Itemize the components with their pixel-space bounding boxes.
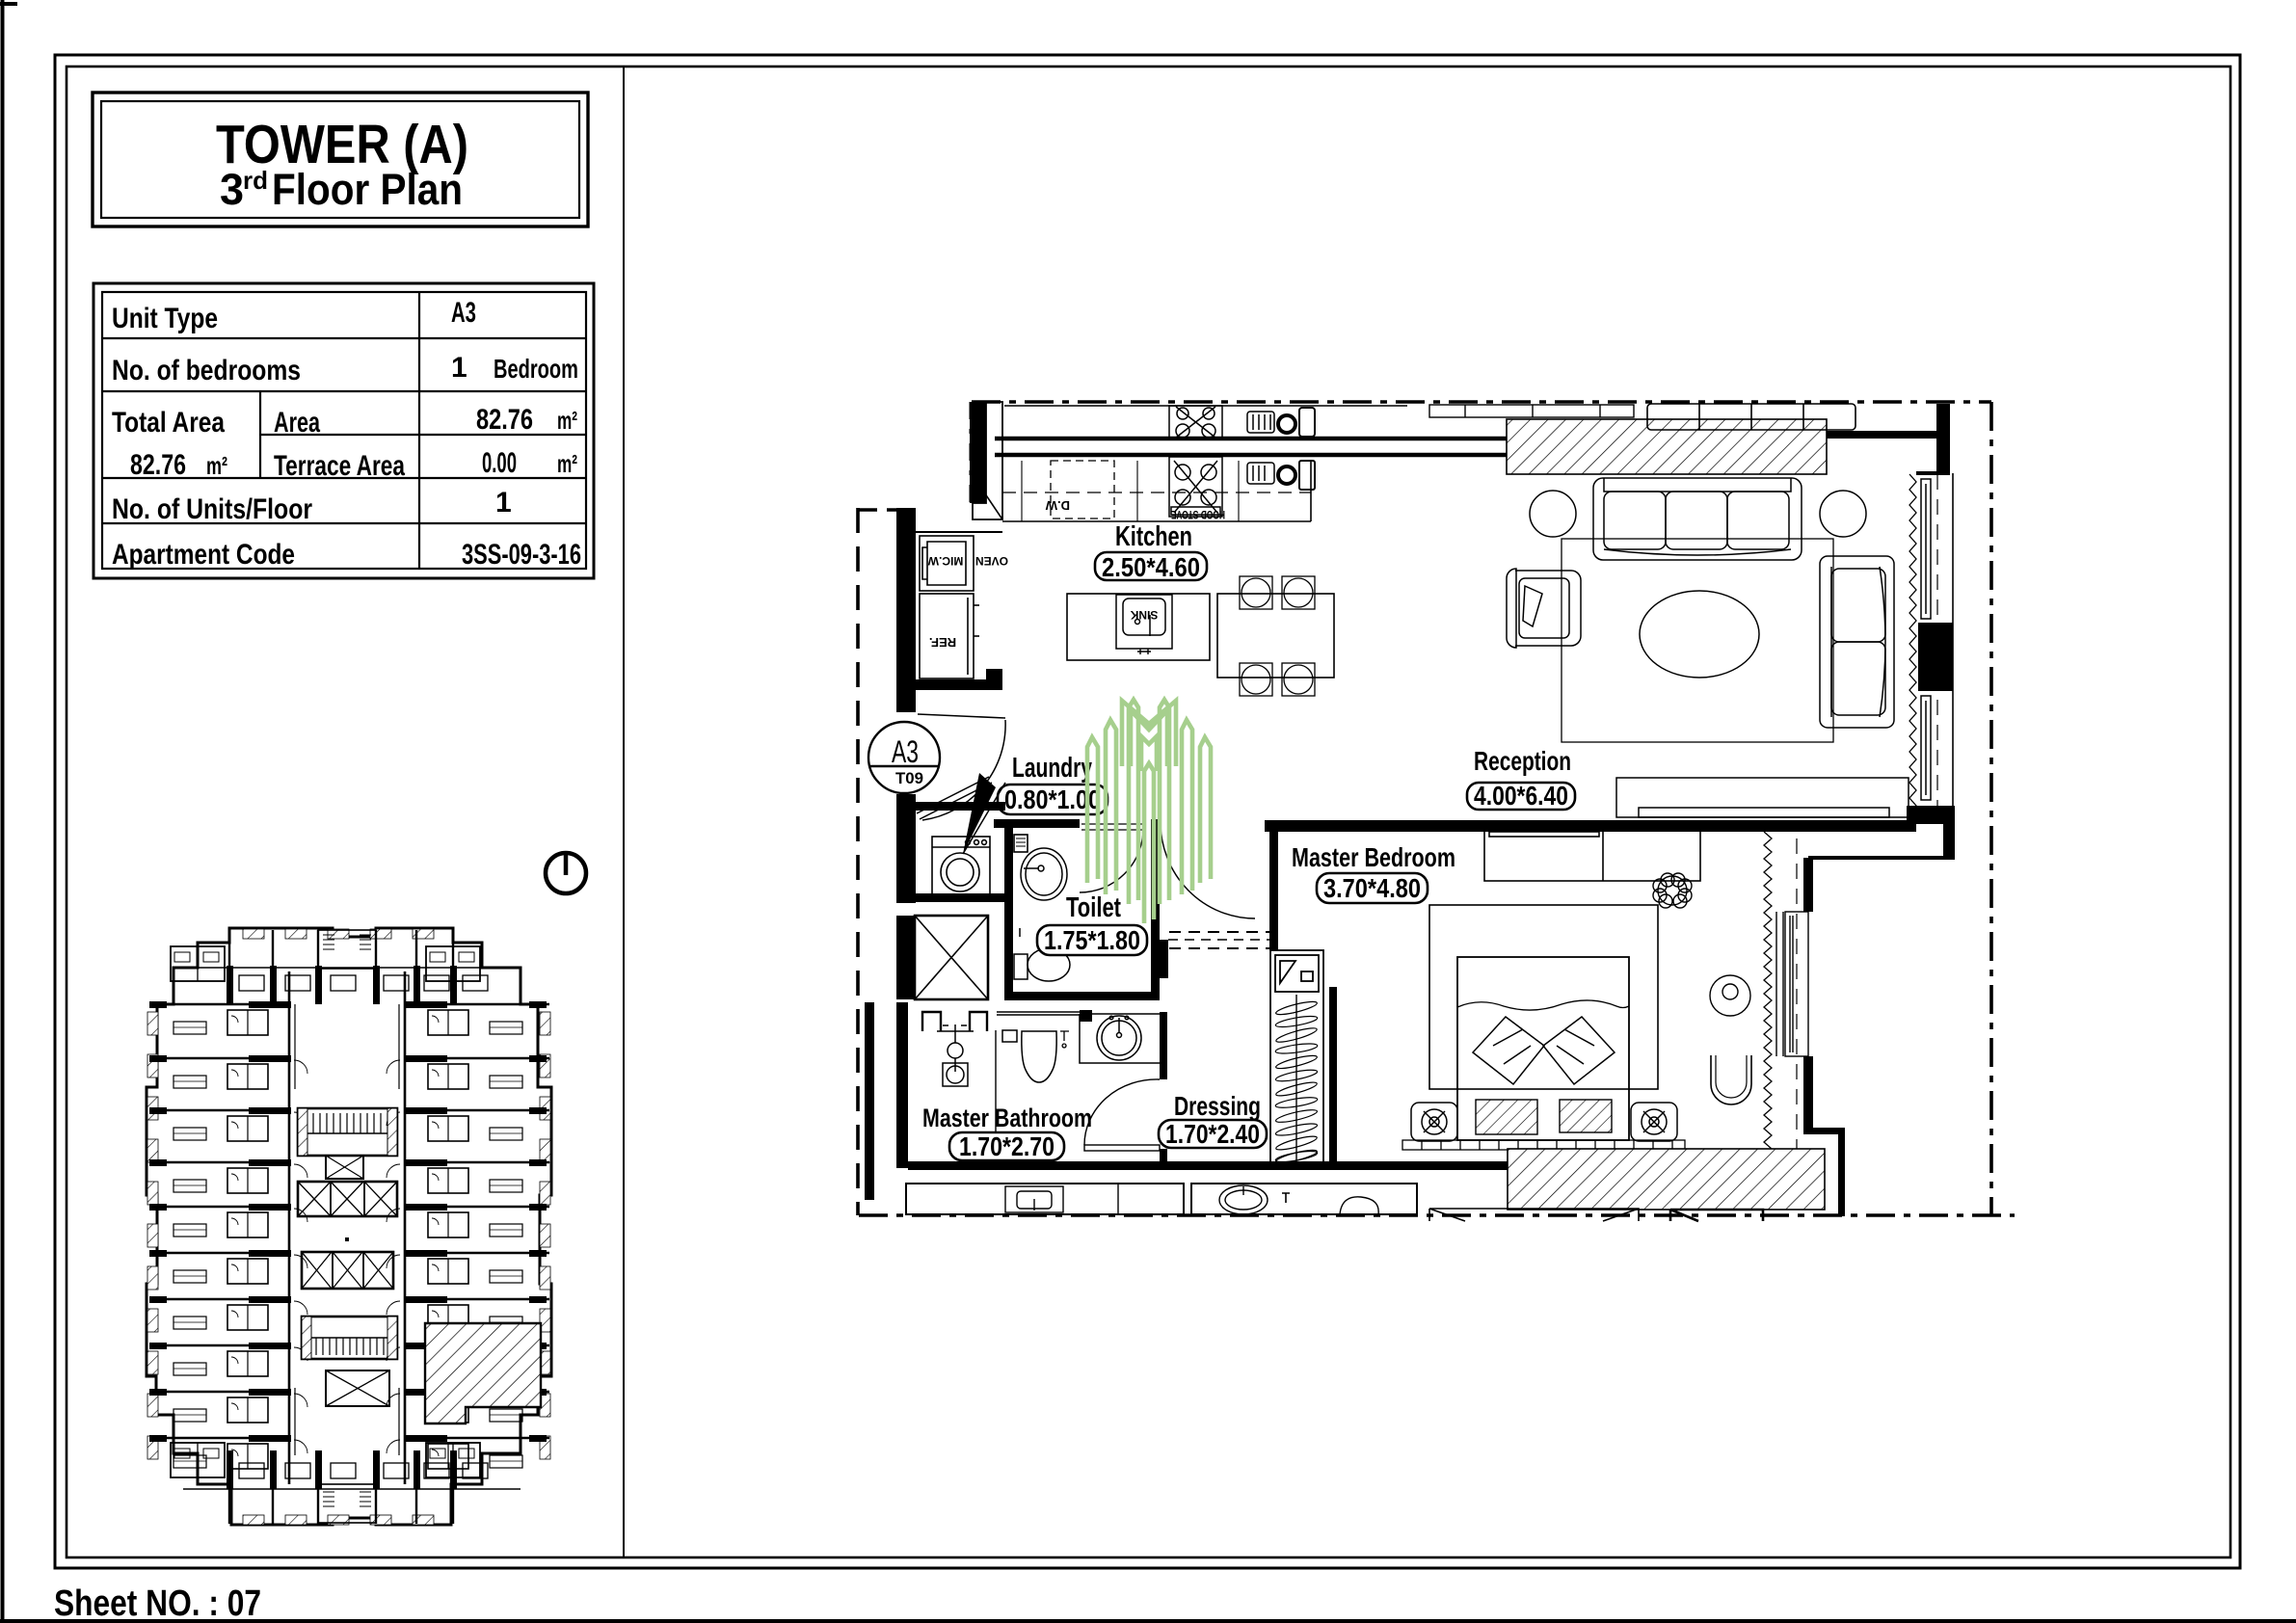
svg-text:Sheet NO. : 07: Sheet NO. : 07 (54, 1583, 261, 1623)
svg-text:m²: m² (557, 449, 577, 478)
svg-text:82.76: 82.76 (476, 404, 533, 436)
svg-text:3: 3 (220, 165, 244, 214)
svg-text:Kitchen: Kitchen (1115, 521, 1192, 552)
svg-text:D.W: D.W (1045, 498, 1070, 513)
svg-text:1.70*2.70: 1.70*2.70 (959, 1131, 1055, 1161)
svg-text:Area: Area (274, 407, 320, 439)
svg-text:1: 1 (495, 487, 512, 519)
svg-text:82.76: 82.76 (130, 449, 186, 481)
svg-text:Apartment Code: Apartment Code (112, 539, 295, 571)
svg-text:2.50*4.60: 2.50*4.60 (1102, 552, 1200, 582)
svg-text:1.70*2.40: 1.70*2.40 (1165, 1119, 1260, 1149)
svg-text:A3: A3 (892, 734, 919, 769)
svg-text:OVEN: OVEN (975, 554, 1008, 568)
svg-text:4.00*6.40: 4.00*6.40 (1474, 781, 1568, 811)
svg-text:MIC.W: MIC.W (927, 554, 963, 568)
svg-text:1.75*1.80: 1.75*1.80 (1044, 925, 1140, 955)
svg-text:rd: rd (243, 166, 268, 195)
svg-text:HOOD STOVE: HOOD STOVE (1171, 508, 1225, 521)
svg-text:Terrace Area: Terrace Area (274, 450, 405, 482)
svg-text:T09: T09 (895, 769, 923, 787)
svg-text:3SS-09-3-16: 3SS-09-3-16 (462, 539, 581, 571)
svg-text:No. of Units/Floor: No. of Units/Floor (112, 493, 312, 525)
svg-text:Master Bedroom: Master Bedroom (1292, 842, 1455, 872)
svg-text:Floor Plan: Floor Plan (272, 165, 463, 214)
svg-text:A3: A3 (451, 297, 476, 329)
svg-text:0.00: 0.00 (482, 447, 517, 479)
svg-text:Bedroom: Bedroom (494, 354, 578, 384)
svg-text:Dressing: Dressing (1174, 1091, 1261, 1121)
svg-text:Total Area: Total Area (112, 407, 225, 439)
svg-text:SINK: SINK (1130, 608, 1158, 622)
svg-text:1: 1 (451, 352, 467, 384)
svg-text:Laundry: Laundry (1012, 753, 1092, 784)
svg-text:Toilet: Toilet (1066, 892, 1121, 923)
svg-text:3.70*4.80: 3.70*4.80 (1323, 873, 1421, 903)
svg-text:m²: m² (206, 451, 227, 480)
svg-text:REF.: REF. (929, 635, 956, 650)
svg-text:Reception: Reception (1474, 746, 1571, 776)
svg-text:Unit Type: Unit Type (112, 303, 218, 334)
svg-text:m²: m² (557, 406, 577, 435)
svg-text:No. of bedrooms: No. of bedrooms (112, 355, 301, 386)
svg-text:Master Bathroom: Master Bathroom (922, 1104, 1092, 1132)
